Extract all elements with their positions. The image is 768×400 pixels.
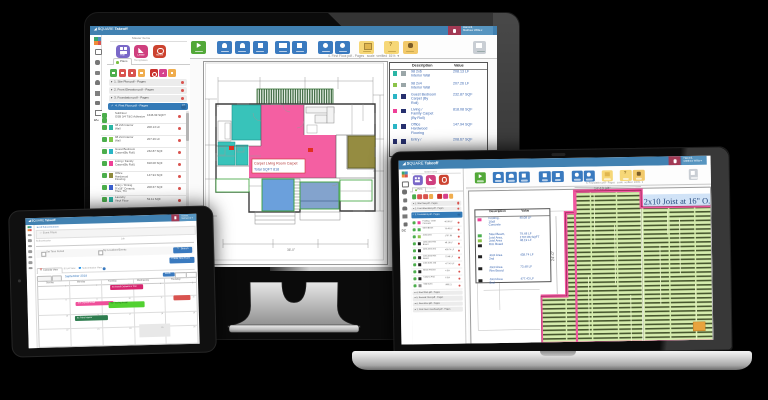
svg-text:36'-0": 36'-0" [287, 248, 295, 252]
svg-text:14'-10 3/4": 14'-10 3/4" [594, 186, 612, 190]
svg-text:2x10 Joist at 16" O.C: 2x10 Joist at 16" O.C [644, 196, 713, 206]
svg-text:Total SQFT 818: Total SQFT 818 [254, 168, 279, 172]
svg-text:Carpet Living Room Carpet: Carpet Living Room Carpet [254, 162, 298, 166]
svg-text:24'-0": 24'-0" [550, 250, 555, 261]
